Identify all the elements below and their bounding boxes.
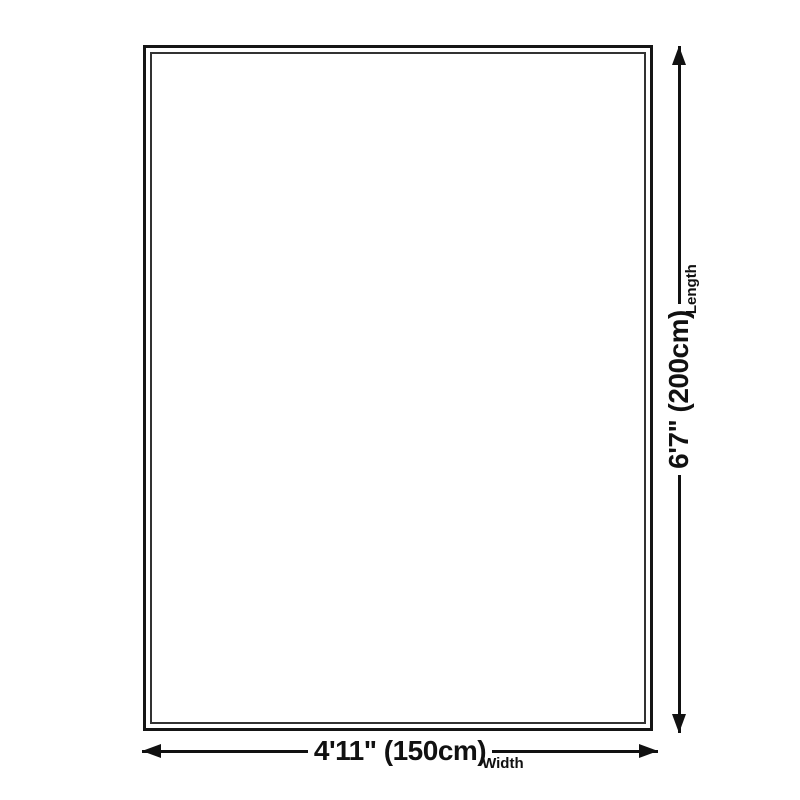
width-axis-label: Width <box>482 756 524 771</box>
width-dimension: 4'11" (150cm) Width <box>142 729 658 773</box>
length-arrow-line-end: Length <box>678 46 681 304</box>
rug-inner-border <box>150 52 646 724</box>
arrow-up-icon <box>672 46 686 65</box>
arrow-down-icon <box>672 714 686 733</box>
length-value: 6'7" (200cm) <box>665 310 693 469</box>
arrow-left-icon <box>142 744 161 758</box>
arrow-right-icon <box>639 744 658 758</box>
rug-outline <box>143 45 653 731</box>
width-value: 4'11" (150cm) <box>314 737 486 765</box>
length-arrow-line-start <box>678 475 681 733</box>
rug-size-diagram: 4'11" (150cm) Width 6'7" (200cm) Length <box>0 0 800 800</box>
length-axis-label: Length <box>684 264 699 314</box>
length-dimension: 6'7" (200cm) Length <box>657 46 701 733</box>
width-arrow-line-end: Width <box>492 750 658 753</box>
width-arrow-line-start <box>142 750 308 753</box>
